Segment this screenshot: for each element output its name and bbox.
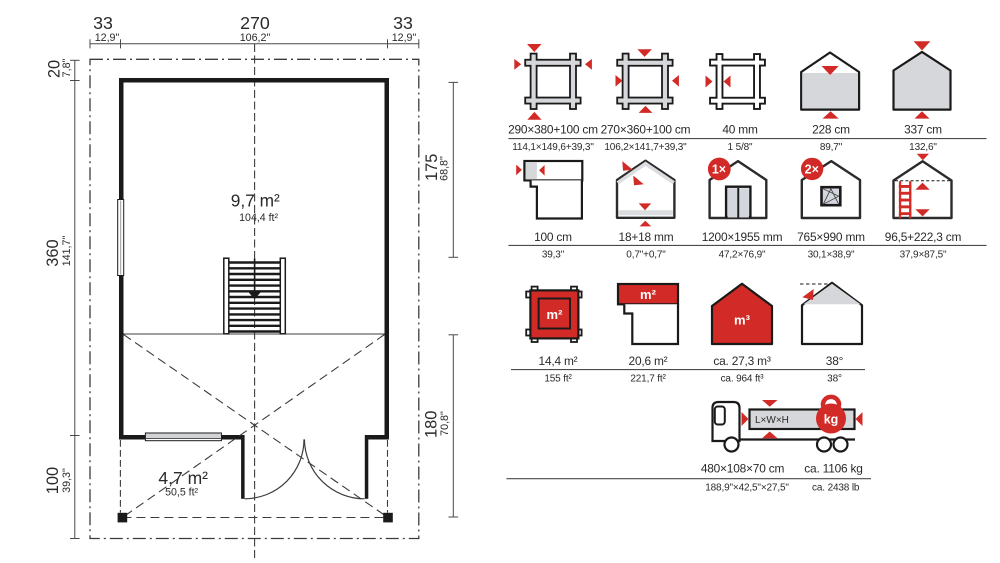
svg-text:141,7": 141,7" (61, 236, 73, 267)
svg-text:39,3": 39,3" (61, 468, 73, 493)
svg-text:12,9": 12,9" (95, 32, 120, 44)
svg-text:33: 33 (93, 13, 113, 33)
svg-text:30,1×38,9": 30,1×38,9" (808, 249, 855, 260)
svg-text:221,7 ft²: 221,7 ft² (630, 374, 666, 385)
svg-text:228 cm: 228 cm (812, 122, 850, 136)
svg-text:100: 100 (44, 467, 62, 494)
svg-text:270: 270 (240, 13, 270, 33)
svg-text:4,7 m²: 4,7 m² (158, 468, 208, 488)
svg-text:47,2×76,9": 47,2×76,9" (719, 249, 766, 260)
svg-text:38°: 38° (827, 374, 842, 385)
svg-text:360: 360 (44, 239, 62, 266)
svg-text:290×380+100 cm: 290×380+100 cm (508, 122, 598, 136)
svg-text:7,8": 7,8" (61, 58, 73, 77)
svg-text:132,6": 132,6" (909, 142, 937, 153)
svg-text:68,8": 68,8" (438, 156, 450, 181)
svg-text:ca. 2438 lb: ca. 2438 lb (812, 483, 860, 494)
svg-text:14,4 m²: 14,4 m² (539, 354, 578, 368)
svg-text:ca. 964 ft³: ca. 964 ft³ (721, 374, 765, 385)
svg-text:96,5+222,3 cm: 96,5+222,3 cm (885, 230, 962, 244)
svg-text:188,9"×42,5"×27,5": 188,9"×42,5"×27,5" (705, 483, 789, 494)
svg-text:38°: 38° (826, 354, 844, 368)
svg-text:9,7 m²: 9,7 m² (231, 190, 280, 210)
svg-text:m²: m² (640, 287, 657, 302)
svg-text:ca. 27,3 m³: ca. 27,3 m³ (713, 354, 771, 368)
svg-text:106,2×141,7+39,3": 106,2×141,7+39,3" (604, 142, 687, 153)
svg-text:18+18 mm: 18+18 mm (619, 230, 674, 244)
svg-text:50,5 ft²: 50,5 ft² (165, 487, 198, 499)
svg-text:1 5/8": 1 5/8" (728, 142, 753, 153)
svg-text:70,8": 70,8" (439, 411, 451, 436)
svg-text:L×W×H: L×W×H (755, 415, 789, 426)
svg-text:480×108×70 cm: 480×108×70 cm (701, 461, 785, 475)
svg-text:104,4 ft²: 104,4 ft² (239, 212, 278, 224)
svg-text:20,6 m²: 20,6 m² (629, 354, 668, 368)
svg-text:114,1×149,6+39,3": 114,1×149,6+39,3" (512, 142, 594, 153)
svg-text:155 ft²: 155 ft² (544, 374, 572, 385)
svg-text:ca. 1106 kg: ca. 1106 kg (804, 461, 862, 475)
svg-text:m²: m² (547, 307, 564, 322)
svg-text:m³: m³ (734, 313, 751, 328)
svg-text:1200×1955 mm: 1200×1955 mm (702, 230, 783, 244)
svg-text:106,2": 106,2" (240, 32, 271, 44)
svg-text:180: 180 (422, 411, 440, 438)
svg-text:12,9": 12,9" (392, 32, 417, 44)
svg-text:0,7"+0,7": 0,7"+0,7" (626, 249, 666, 260)
svg-text:2×: 2× (805, 162, 819, 176)
svg-text:39,3": 39,3" (542, 249, 565, 260)
svg-text:337 cm: 337 cm (904, 122, 942, 136)
svg-text:37,9×87,5": 37,9×87,5" (900, 249, 947, 260)
svg-text:33: 33 (393, 13, 413, 33)
svg-text:270×360+100 cm: 270×360+100 cm (601, 122, 691, 136)
svg-text:1×: 1× (712, 163, 726, 177)
svg-text:89,7": 89,7" (820, 142, 843, 153)
svg-text:40 mm: 40 mm (722, 122, 758, 136)
svg-text:765×990 mm: 765×990 mm (797, 230, 865, 244)
svg-text:100 cm: 100 cm (534, 230, 572, 244)
svg-text:kg: kg (824, 413, 839, 427)
